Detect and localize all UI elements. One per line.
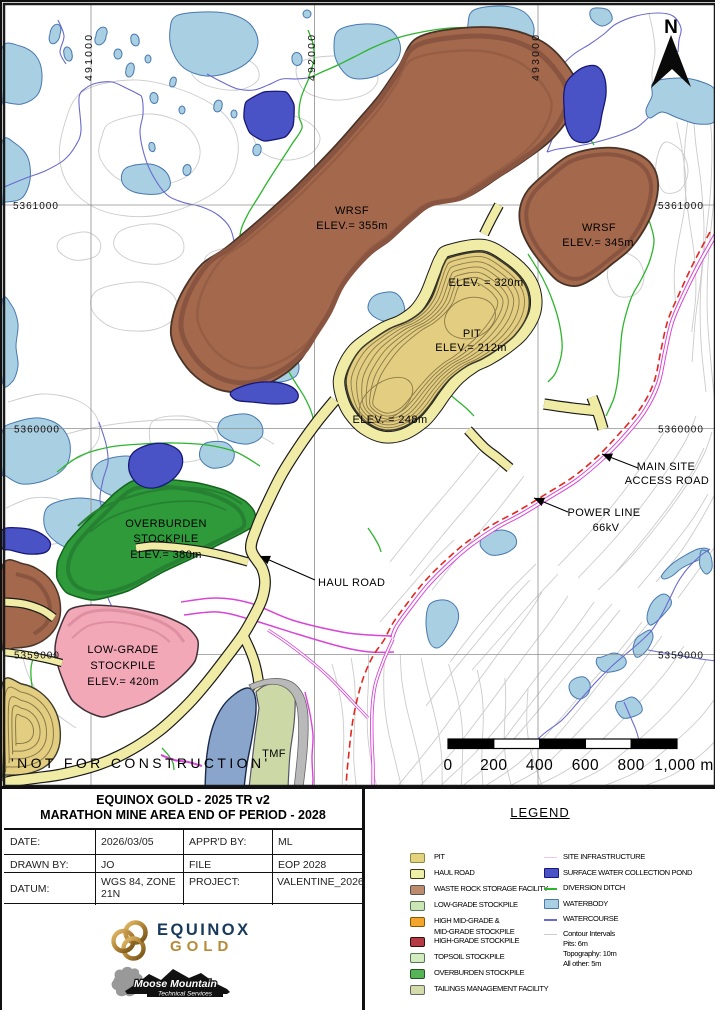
svg-text:N: N bbox=[664, 17, 678, 38]
svg-text:0: 0 bbox=[443, 757, 452, 774]
svg-text:66kV: 66kV bbox=[593, 522, 620, 534]
svg-text:5359000: 5359000 bbox=[658, 651, 704, 662]
svg-text:WRSF: WRSF bbox=[335, 205, 369, 217]
svg-text:OVERBURDEN: OVERBURDEN bbox=[125, 518, 207, 530]
svg-text:MAIN SITE: MAIN SITE bbox=[637, 461, 696, 473]
svg-text:5359000: 5359000 bbox=[14, 651, 60, 662]
svg-text:493000: 493000 bbox=[530, 33, 542, 81]
svg-text:PIT: PIT bbox=[463, 328, 481, 340]
svg-text:1,000 m: 1,000 m bbox=[654, 757, 714, 774]
svg-text:STOCKPILE: STOCKPILE bbox=[90, 660, 155, 672]
svg-text:5360000: 5360000 bbox=[658, 425, 704, 436]
svg-text:ELEV.= 345m: ELEV.= 345m bbox=[562, 237, 634, 249]
svg-text:Technical Services: Technical Services bbox=[158, 991, 213, 998]
svg-text:5361000: 5361000 bbox=[13, 201, 59, 212]
svg-text:492000: 492000 bbox=[306, 33, 318, 81]
svg-text:5361000: 5361000 bbox=[658, 201, 704, 212]
svg-text:600: 600 bbox=[572, 757, 599, 774]
svg-text:Moose Mountain: Moose Mountain bbox=[134, 978, 217, 990]
svg-text:800: 800 bbox=[618, 757, 645, 774]
svg-text:LOW-GRADE: LOW-GRADE bbox=[87, 644, 158, 656]
svg-text:491000: 491000 bbox=[83, 33, 95, 81]
svg-text:HAUL ROAD: HAUL ROAD bbox=[318, 577, 385, 589]
svg-text:ELEV.= 355m: ELEV.= 355m bbox=[316, 220, 388, 232]
svg-text:ELEV. = 320m: ELEV. = 320m bbox=[448, 277, 523, 289]
svg-text:ELEV.= 212m: ELEV.= 212m bbox=[435, 342, 507, 354]
svg-text:200: 200 bbox=[480, 757, 507, 774]
svg-text:'NOT FOR CONSTRUCTION': 'NOT FOR CONSTRUCTION' bbox=[11, 755, 271, 771]
svg-text:ELEV.= 420m: ELEV.= 420m bbox=[87, 676, 159, 688]
svg-text:5360000: 5360000 bbox=[14, 425, 60, 436]
svg-text:STOCKPILE: STOCKPILE bbox=[133, 533, 198, 545]
svg-text:400: 400 bbox=[526, 757, 553, 774]
svg-text:ELEV.= 380m: ELEV.= 380m bbox=[130, 549, 202, 561]
svg-text:ELEV. = 248m: ELEV. = 248m bbox=[352, 414, 427, 426]
svg-text:ACCESS ROAD: ACCESS ROAD bbox=[625, 475, 709, 487]
svg-text:WRSF: WRSF bbox=[582, 222, 616, 234]
svg-text:POWER LINE: POWER LINE bbox=[567, 507, 640, 519]
